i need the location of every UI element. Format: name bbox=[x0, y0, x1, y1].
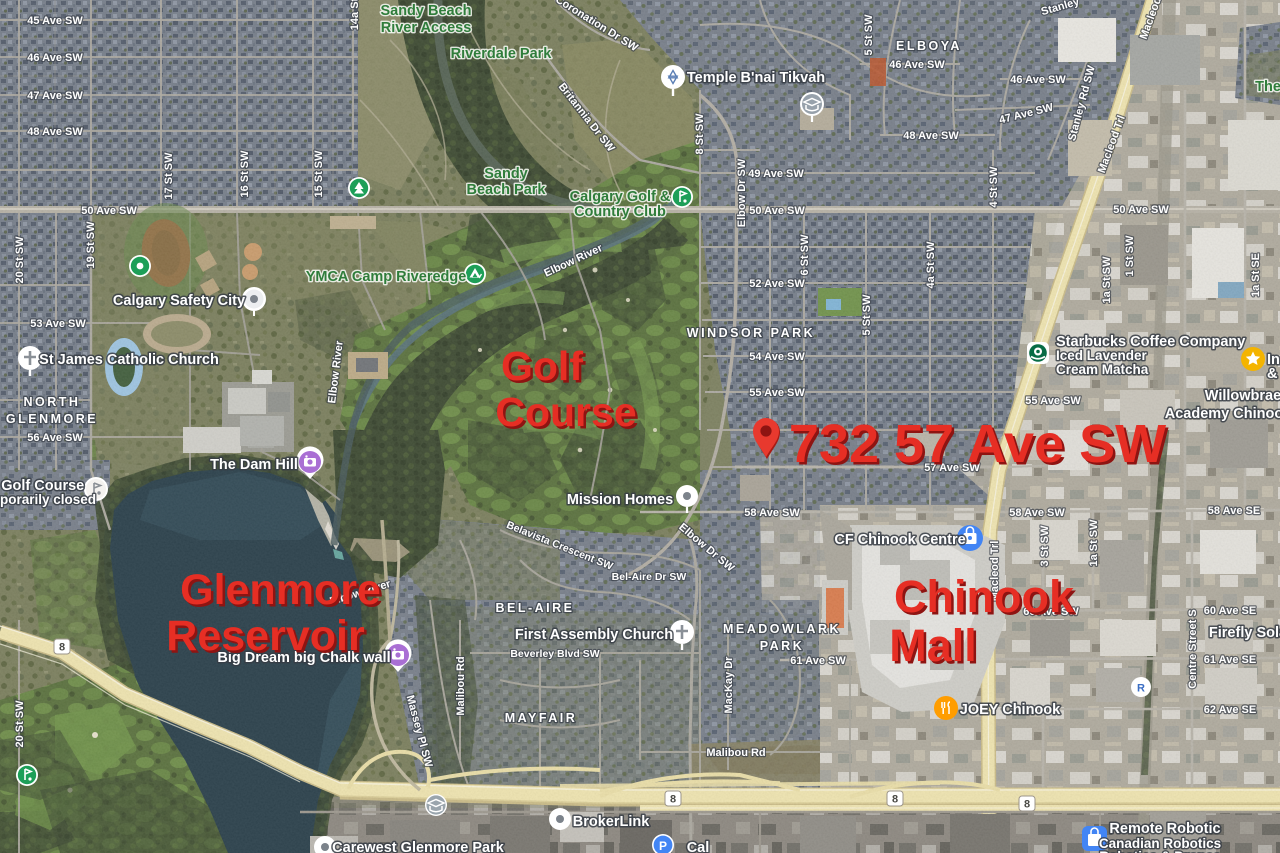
svg-text:The Dam Hill: The Dam Hill bbox=[210, 457, 298, 473]
svg-text:ELBOYA: ELBOYA bbox=[896, 39, 962, 53]
svg-text:Beach Park: Beach Park bbox=[467, 182, 547, 198]
svg-text:14a St: 14a St bbox=[349, 0, 361, 30]
svg-text:61 Ave SW: 61 Ave SW bbox=[790, 655, 846, 667]
svg-text:Calgary Safety City: Calgary Safety City bbox=[113, 293, 245, 309]
svg-text:58 Ave SE: 58 Ave SE bbox=[1208, 505, 1260, 517]
svg-text:49 Ave SW: 49 Ave SW bbox=[748, 168, 804, 180]
svg-text:54 Ave SW: 54 Ave SW bbox=[749, 351, 805, 363]
svg-text:River Access: River Access bbox=[381, 20, 472, 36]
svg-text:Calgary Golf &: Calgary Golf & bbox=[570, 189, 671, 205]
svg-text:MAYFAIR: MAYFAIR bbox=[505, 711, 578, 725]
svg-text:Malibou Rd: Malibou Rd bbox=[706, 747, 765, 759]
svg-text:53 Ave SW: 53 Ave SW bbox=[30, 318, 86, 330]
svg-text:8 St SW: 8 St SW bbox=[694, 113, 706, 155]
svg-text:8: 8 bbox=[892, 794, 898, 806]
svg-text:Chinook: Chinook bbox=[894, 571, 1075, 622]
svg-text:58 Ave SW: 58 Ave SW bbox=[744, 507, 800, 519]
svg-text:BrokerLink: BrokerLink bbox=[573, 814, 650, 830]
svg-text:Centre Street S: Centre Street S bbox=[1187, 609, 1199, 688]
svg-text:Willowbrae: Willowbrae bbox=[1205, 388, 1280, 404]
svg-text:50 Ave SW: 50 Ave SW bbox=[1113, 204, 1169, 216]
svg-text:The: The bbox=[1255, 79, 1280, 95]
svg-text:1 St SW: 1 St SW bbox=[1124, 235, 1136, 277]
svg-text:Country Club: Country Club bbox=[574, 204, 666, 220]
svg-text:PARK: PARK bbox=[760, 639, 805, 653]
svg-text:Iced Lavender: Iced Lavender bbox=[1056, 348, 1148, 363]
svg-text:17 St SW: 17 St SW bbox=[163, 152, 175, 200]
svg-text:20 St SW: 20 St SW bbox=[14, 700, 26, 748]
svg-text:1a St SW: 1a St SW bbox=[1088, 519, 1100, 567]
svg-text:19 St SW: 19 St SW bbox=[85, 221, 97, 269]
svg-text:Carewest Glenmore Park: Carewest Glenmore Park bbox=[332, 840, 505, 853]
svg-text:Mission Homes: Mission Homes bbox=[567, 492, 673, 508]
svg-text:1a St SW: 1a St SW bbox=[1101, 256, 1113, 304]
svg-text:56 Ave SW: 56 Ave SW bbox=[27, 432, 83, 444]
svg-text:Robotics & Drones: Robotics & Drones bbox=[1099, 849, 1221, 853]
svg-text:YMCA Camp Riveredge: YMCA Camp Riveredge bbox=[306, 269, 467, 285]
svg-text:Temple B'nai Tikvah: Temple B'nai Tikvah bbox=[687, 70, 825, 86]
svg-text:Malibou Rd: Malibou Rd bbox=[455, 656, 467, 715]
svg-text:4a St SW: 4a St SW bbox=[925, 241, 937, 289]
svg-text:46 Ave SW: 46 Ave SW bbox=[889, 59, 945, 71]
svg-text:Reservoir: Reservoir bbox=[166, 612, 365, 660]
svg-text:MacKay Dr: MacKay Dr bbox=[723, 656, 735, 714]
svg-text:46 Ave SW: 46 Ave SW bbox=[27, 52, 83, 64]
svg-text:8: 8 bbox=[670, 794, 676, 806]
svg-text:&: & bbox=[1267, 366, 1278, 382]
svg-text:First Assembly Church: First Assembly Church bbox=[515, 627, 673, 643]
svg-text:Mall: Mall bbox=[889, 620, 977, 671]
svg-text:5 St SW: 5 St SW bbox=[861, 294, 873, 336]
svg-text:WINDSOR PARK: WINDSOR PARK bbox=[687, 326, 815, 340]
svg-text:4 St SW: 4 St SW bbox=[988, 166, 1000, 208]
svg-text:50 Ave SW: 50 Ave SW bbox=[749, 205, 805, 217]
svg-text:50 Ave SW: 50 Ave SW bbox=[81, 205, 137, 217]
svg-text:BEL-AIRE: BEL-AIRE bbox=[495, 601, 574, 615]
svg-text:3 St SW: 3 St SW bbox=[1039, 525, 1051, 567]
svg-text:Golf: Golf bbox=[501, 343, 583, 389]
svg-text:Glenmore: Glenmore bbox=[180, 566, 381, 614]
svg-text:1a St SE: 1a St SE bbox=[1250, 253, 1262, 297]
svg-text:732 57 Ave SW: 732 57 Ave SW bbox=[789, 414, 1166, 474]
svg-text:P: P bbox=[659, 839, 667, 853]
svg-text:R: R bbox=[1137, 683, 1145, 695]
svg-text:JOEY Chinook: JOEY Chinook bbox=[960, 702, 1061, 718]
svg-text:NORTH: NORTH bbox=[24, 395, 81, 409]
svg-text:St James Catholic Church: St James Catholic Church bbox=[39, 352, 219, 368]
svg-text:Remote Robotic: Remote Robotic bbox=[1109, 821, 1220, 837]
svg-text:Sandy Beach: Sandy Beach bbox=[380, 3, 471, 19]
svg-text:Academy Chinook: Academy Chinook bbox=[1165, 406, 1280, 422]
svg-text:52 Ave SW: 52 Ave SW bbox=[749, 278, 805, 290]
svg-text:47 Ave SW: 47 Ave SW bbox=[27, 90, 83, 102]
svg-text:15 St SW: 15 St SW bbox=[313, 150, 325, 198]
svg-text:55 Ave SW: 55 Ave SW bbox=[749, 387, 805, 399]
svg-text:Cream Matcha: Cream Matcha bbox=[1056, 362, 1149, 377]
svg-text:62 Ave SE: 62 Ave SE bbox=[1204, 704, 1256, 716]
svg-text:mporarily closed: mporarily closed bbox=[0, 492, 96, 507]
svg-text:45 Ave SW: 45 Ave SW bbox=[27, 15, 83, 27]
svg-text:GLENMORE: GLENMORE bbox=[6, 412, 98, 426]
svg-text:Elbow Dr SW: Elbow Dr SW bbox=[736, 158, 748, 227]
svg-text:6 St SW: 6 St SW bbox=[799, 234, 811, 276]
svg-text:46 Ave SW: 46 Ave SW bbox=[1010, 74, 1066, 86]
svg-text:20 St SW: 20 St SW bbox=[14, 236, 26, 284]
svg-text:60 Ave SE: 60 Ave SE bbox=[1204, 605, 1256, 617]
svg-text:Beverley Blvd SW: Beverley Blvd SW bbox=[510, 648, 599, 660]
svg-text:Cal: Cal bbox=[687, 840, 710, 853]
svg-text:48 Ave SW: 48 Ave SW bbox=[27, 126, 83, 138]
svg-text:Riverdale Park: Riverdale Park bbox=[451, 46, 553, 62]
svg-text:16 St SW: 16 St SW bbox=[239, 150, 251, 198]
svg-text:Firefly Sola: Firefly Sola bbox=[1209, 625, 1280, 641]
svg-text:48 Ave SW: 48 Ave SW bbox=[903, 130, 959, 142]
svg-text:8: 8 bbox=[59, 642, 65, 654]
svg-text:CF Chinook Centre: CF Chinook Centre bbox=[834, 532, 965, 548]
svg-text:Sandy: Sandy bbox=[484, 166, 528, 182]
svg-text:MEADOWLARK: MEADOWLARK bbox=[723, 622, 841, 636]
svg-text:58 Ave SW: 58 Ave SW bbox=[1009, 507, 1065, 519]
svg-text:8: 8 bbox=[1024, 799, 1030, 811]
svg-text:5 St SW: 5 St SW bbox=[863, 14, 875, 56]
svg-text:Bel-Aire Dr SW: Bel-Aire Dr SW bbox=[612, 571, 687, 583]
svg-text:61 Ave SE: 61 Ave SE bbox=[1204, 654, 1256, 666]
svg-text:55 Ave SW: 55 Ave SW bbox=[1025, 395, 1081, 407]
svg-text:Course: Course bbox=[495, 389, 636, 435]
